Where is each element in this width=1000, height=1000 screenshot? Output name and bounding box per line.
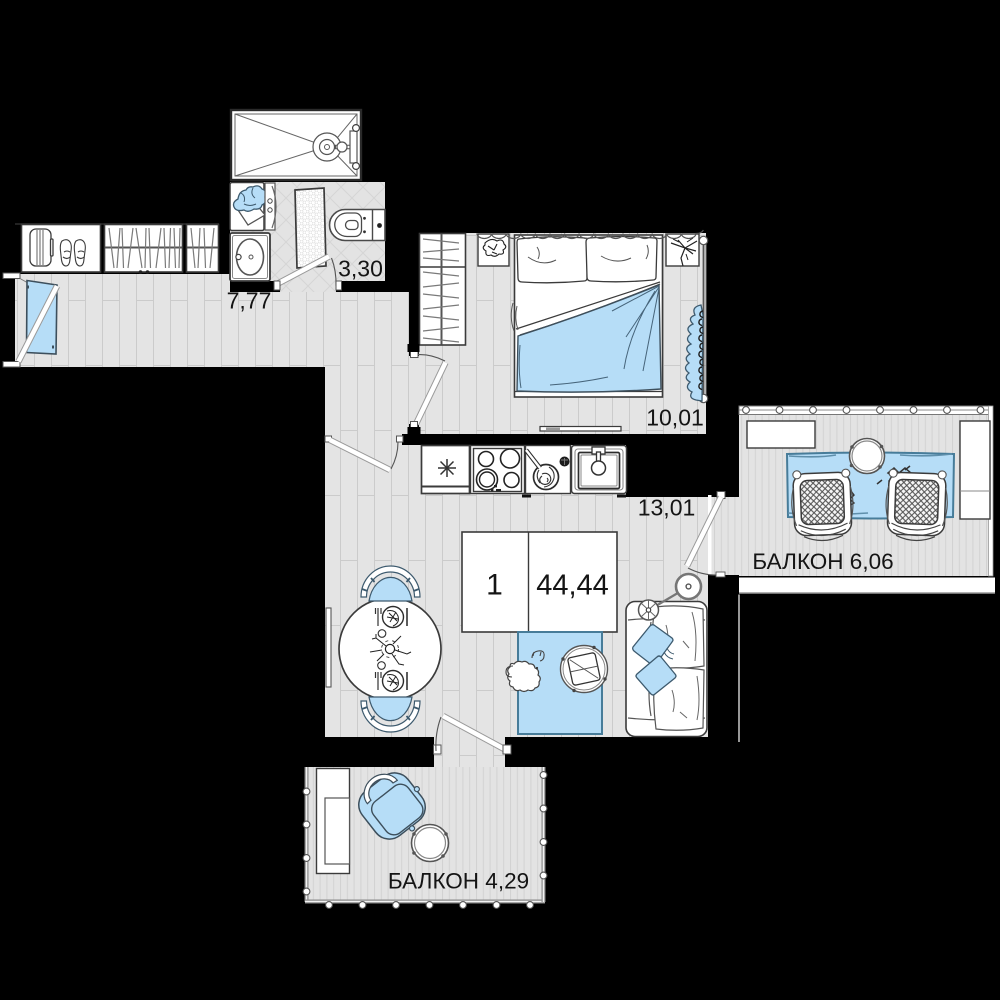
svg-text:1: 1 (486, 569, 503, 602)
svg-text:13,01: 13,01 (638, 495, 696, 521)
svg-text:БАЛКОН 6,06: БАЛКОН 6,06 (752, 549, 893, 574)
svg-text:3,30: 3,30 (338, 256, 383, 282)
svg-text:7,77: 7,77 (227, 288, 272, 314)
svg-text:БАЛКОН 4,29: БАЛКОН 4,29 (388, 869, 529, 894)
svg-text:10,01: 10,01 (646, 405, 704, 431)
svg-text:44,44: 44,44 (536, 570, 609, 602)
